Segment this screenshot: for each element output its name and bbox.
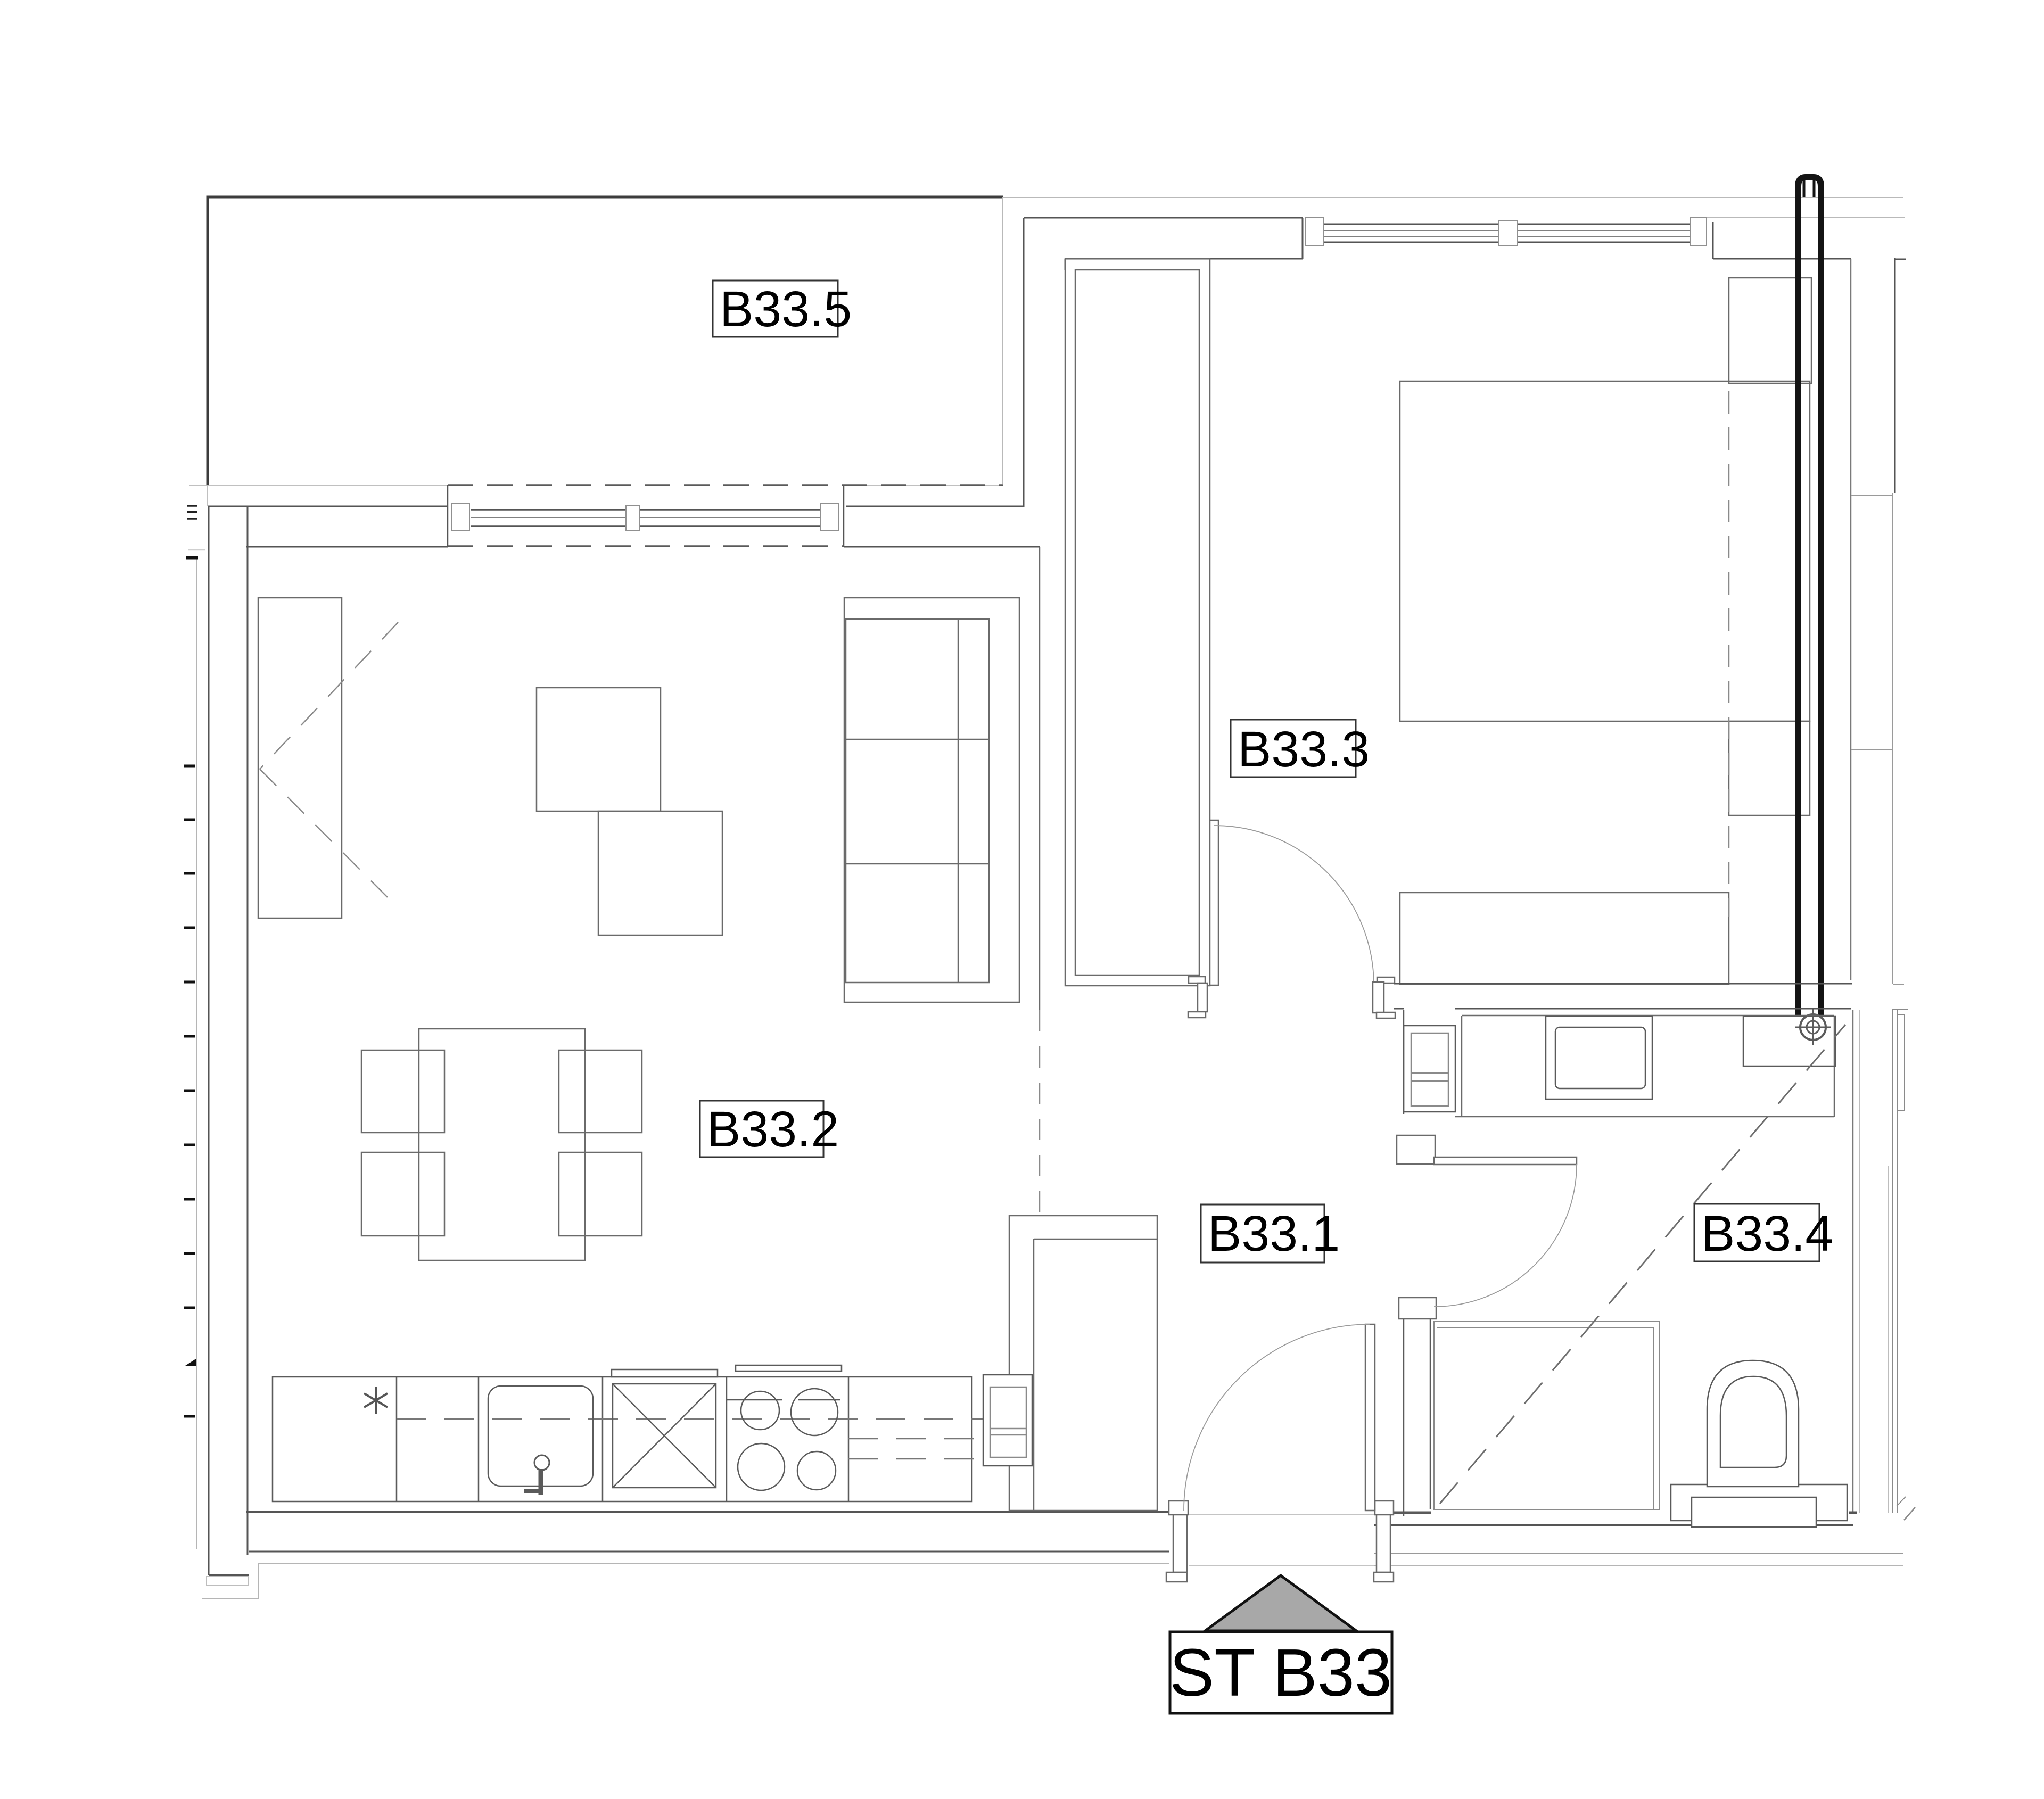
svg-text:B33.4: B33.4 bbox=[1701, 1206, 1833, 1262]
svg-text:B33.1: B33.1 bbox=[1208, 1206, 1340, 1262]
svg-text:B33.3: B33.3 bbox=[1238, 721, 1370, 778]
svg-text:ST B33: ST B33 bbox=[1169, 1635, 1392, 1710]
svg-text:B33.5: B33.5 bbox=[720, 281, 852, 337]
svg-text:B33.2: B33.2 bbox=[707, 1101, 839, 1158]
